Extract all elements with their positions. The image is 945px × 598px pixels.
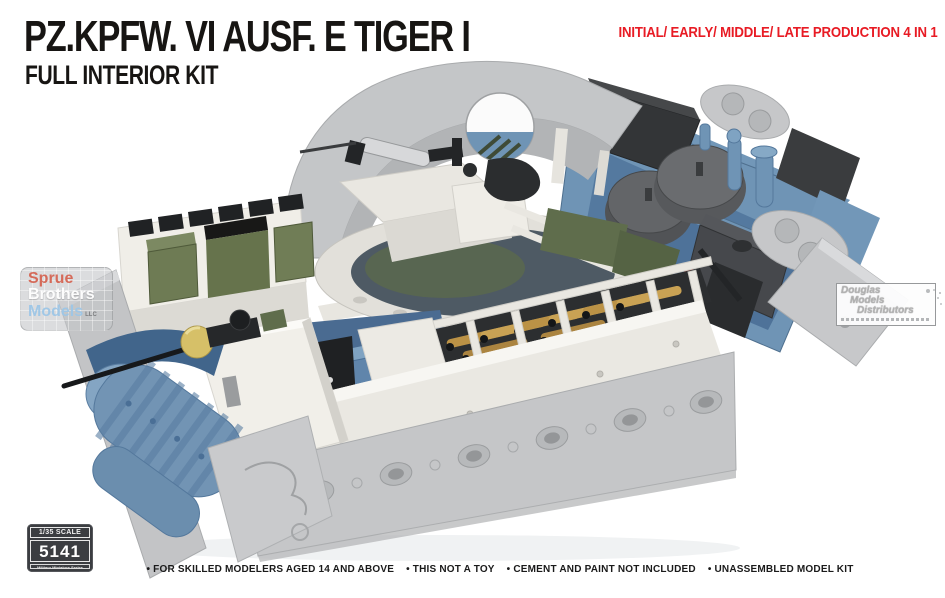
ground-shadow — [140, 535, 740, 561]
kit-number: 5141 — [30, 540, 90, 562]
production-note: INITIAL/ EARLY/ MIDDLE/ LATE PRODUCTION … — [618, 24, 937, 41]
watermark-tagline-line — [841, 318, 931, 321]
page-title: PZ.KPFW. VI AUSF. E TIGER I — [24, 12, 470, 62]
disclaimer-item: • THIS NOT A TOY — [406, 564, 495, 575]
page-subtitle: FULL INTERIOR KIT — [25, 60, 218, 91]
watermark-word: Sprue — [28, 271, 113, 287]
disclaimer-item: • FOR SKILLED MODELERS AGED 14 AND ABOVE — [146, 564, 394, 575]
scale-label: 1/35 SCALE — [30, 527, 90, 538]
disclaimer-item: • CEMENT AND PAINT NOT INCLUDED — [507, 564, 696, 575]
watermark-douglas-models: Douglas Models Distributors — [836, 283, 936, 326]
disclaimer-item: • UNASSEMBLED MODEL KIT — [708, 564, 854, 575]
watermark-word: Distributors — [857, 306, 931, 316]
watermark-word: Brothers — [28, 287, 113, 303]
box-art: PZ.KPFW. VI AUSF. E TIGER I FULL INTERIO… — [0, 0, 945, 598]
series-label: Military Miniature Series — [30, 564, 90, 569]
kit-number-badge: 1/35 SCALE 5141 Military Miniature Serie… — [27, 524, 93, 572]
footer-disclaimers: • FOR SKILLED MODELERS AGED 14 AND ABOVE… — [146, 564, 853, 575]
watermark-suffix: LLC — [85, 312, 97, 318]
world-map-dots — [926, 289, 930, 293]
watermark-sprue-brothers: Sprue Brothers ModelsLLC — [20, 267, 113, 331]
watermark-word: Models — [28, 304, 83, 320]
